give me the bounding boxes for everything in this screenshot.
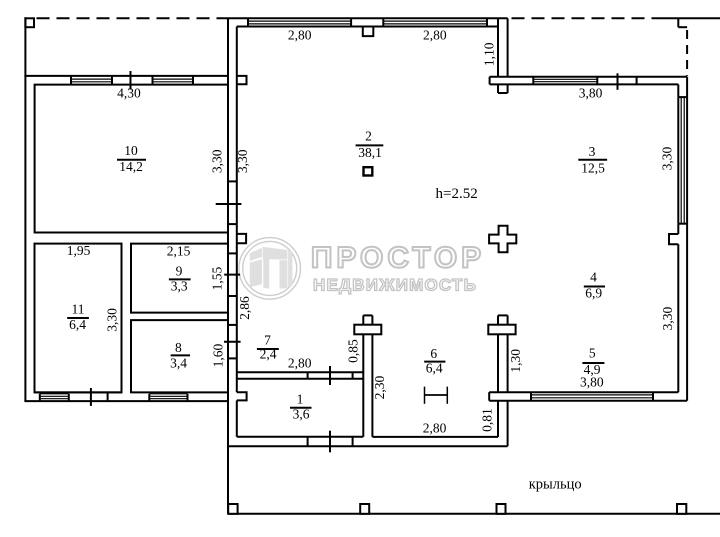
svg-text:2,86: 2,86	[237, 296, 252, 320]
svg-text:8: 8	[175, 340, 182, 355]
svg-text:2,80: 2,80	[288, 356, 312, 371]
svg-text:2,15: 2,15	[167, 244, 191, 259]
svg-text:3,30: 3,30	[210, 149, 225, 173]
svg-text:3,30: 3,30	[660, 306, 675, 330]
svg-text:3,80: 3,80	[579, 85, 603, 100]
svg-text:2,80: 2,80	[423, 28, 447, 43]
svg-text:3,3: 3,3	[171, 279, 188, 294]
svg-text:7: 7	[264, 332, 271, 347]
svg-text:h=2.52: h=2.52	[435, 186, 477, 202]
svg-text:3,6: 3,6	[293, 407, 310, 422]
svg-text:1,30: 1,30	[508, 349, 523, 373]
svg-text:3,30: 3,30	[235, 149, 250, 173]
svg-text:38,1: 38,1	[358, 145, 382, 160]
svg-text:0,85: 0,85	[345, 339, 360, 363]
svg-text:6,9: 6,9	[585, 286, 602, 301]
svg-text:1,55: 1,55	[210, 266, 225, 290]
svg-text:2,80: 2,80	[423, 420, 447, 435]
svg-text:3,4: 3,4	[170, 356, 187, 371]
svg-text:6: 6	[430, 346, 437, 361]
svg-text:10: 10	[124, 143, 138, 158]
svg-text:5: 5	[589, 346, 596, 361]
svg-text:крыльцо: крыльцо	[529, 477, 582, 493]
svg-text:3: 3	[589, 144, 596, 159]
svg-text:12,5: 12,5	[581, 161, 605, 176]
svg-text:6,4: 6,4	[426, 361, 443, 376]
svg-text:2,30: 2,30	[372, 375, 387, 399]
svg-text:НЕДВИЖИМОСТЬ: НЕДВИЖИМОСТЬ	[313, 276, 477, 295]
svg-text:1,60: 1,60	[210, 343, 225, 367]
svg-text:4: 4	[590, 269, 597, 284]
svg-text:4,9: 4,9	[584, 362, 601, 377]
svg-text:3,30: 3,30	[104, 308, 119, 332]
svg-text:3,30: 3,30	[660, 146, 675, 170]
svg-text:9: 9	[176, 264, 183, 279]
svg-text:1,95: 1,95	[67, 243, 91, 258]
svg-text:1,10: 1,10	[481, 42, 496, 66]
svg-text:ПРОСТОР: ПРОСТОР	[311, 242, 485, 275]
svg-text:6,4: 6,4	[69, 317, 86, 332]
svg-text:2: 2	[365, 129, 372, 144]
svg-text:4,30: 4,30	[117, 85, 141, 100]
svg-text:14,2: 14,2	[119, 159, 143, 174]
svg-text:1: 1	[297, 391, 304, 406]
svg-text:2,80: 2,80	[288, 28, 312, 43]
svg-text:11: 11	[72, 301, 85, 316]
svg-text:0,81: 0,81	[480, 408, 495, 432]
